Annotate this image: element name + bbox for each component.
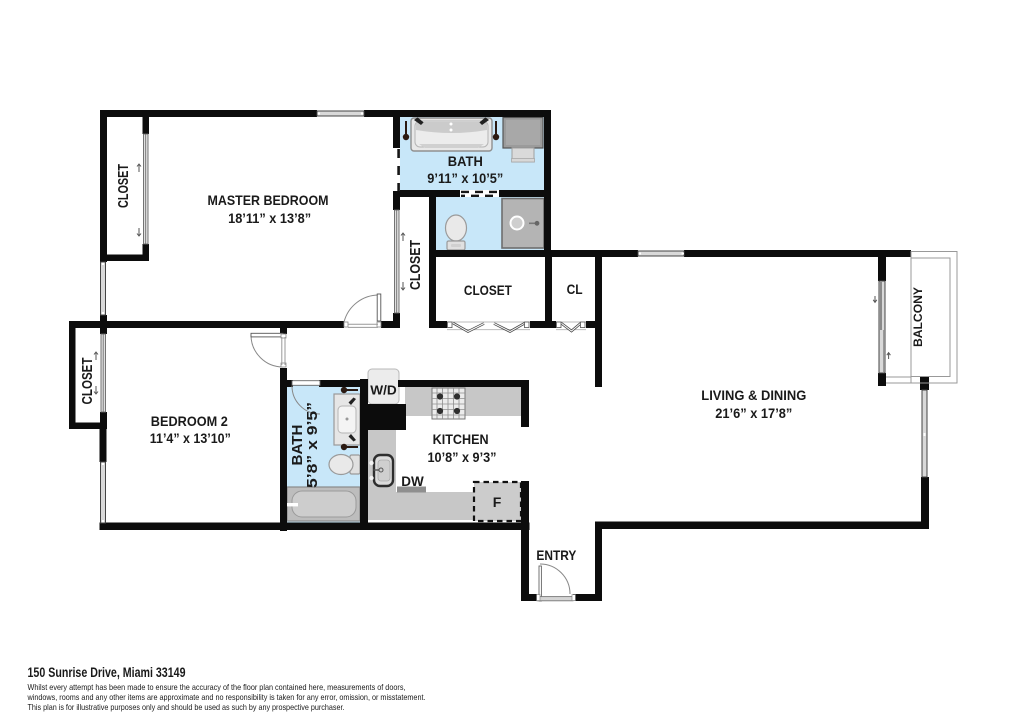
svg-text:CLOSET: CLOSET xyxy=(115,164,132,208)
svg-text:CLOSET: CLOSET xyxy=(407,240,424,290)
svg-text:18’11” x 13’8”: 18’11” x 13’8” xyxy=(228,210,311,226)
svg-text:LIVING & DINING: LIVING & DINING xyxy=(701,387,806,403)
svg-text:21’6” x 17’8”: 21’6” x 17’8” xyxy=(715,405,792,421)
svg-text:DW: DW xyxy=(401,473,424,489)
svg-text:11’4” x 13’10”: 11’4” x 13’10” xyxy=(150,430,231,446)
svg-text:KITCHEN: KITCHEN xyxy=(433,431,489,447)
svg-text:W/D: W/D xyxy=(370,383,397,398)
svg-text:BATH: BATH xyxy=(448,153,483,169)
svg-text:ENTRY: ENTRY xyxy=(536,547,577,563)
svg-text:MASTER BEDROOM: MASTER BEDROOM xyxy=(208,192,329,208)
svg-text:Whilst every attempt has been: Whilst every attempt has been made to en… xyxy=(28,683,406,692)
svg-text:BALCONY: BALCONY xyxy=(911,287,925,347)
svg-text:150 Sunrise Drive, Miami 33149: 150 Sunrise Drive, Miami 33149 xyxy=(28,665,186,680)
svg-text:CL: CL xyxy=(567,281,583,297)
svg-text:5’8” x 9’5”: 5’8” x 9’5” xyxy=(304,402,321,488)
svg-text:CLOSET: CLOSET xyxy=(464,282,512,298)
svg-text:BEDROOM 2: BEDROOM 2 xyxy=(151,413,228,429)
svg-text:10’8” x 9’3”: 10’8” x 9’3” xyxy=(428,449,497,465)
svg-text:windows, rooms and any other i: windows, rooms and any other items are a… xyxy=(27,693,426,702)
svg-text:This plan is for illustrative: This plan is for illustrative purposes o… xyxy=(28,703,345,712)
svg-text:CLOSET: CLOSET xyxy=(79,358,96,405)
svg-text:9’11” x 10’5”: 9’11” x 10’5” xyxy=(427,170,503,186)
svg-text:F: F xyxy=(493,494,502,510)
